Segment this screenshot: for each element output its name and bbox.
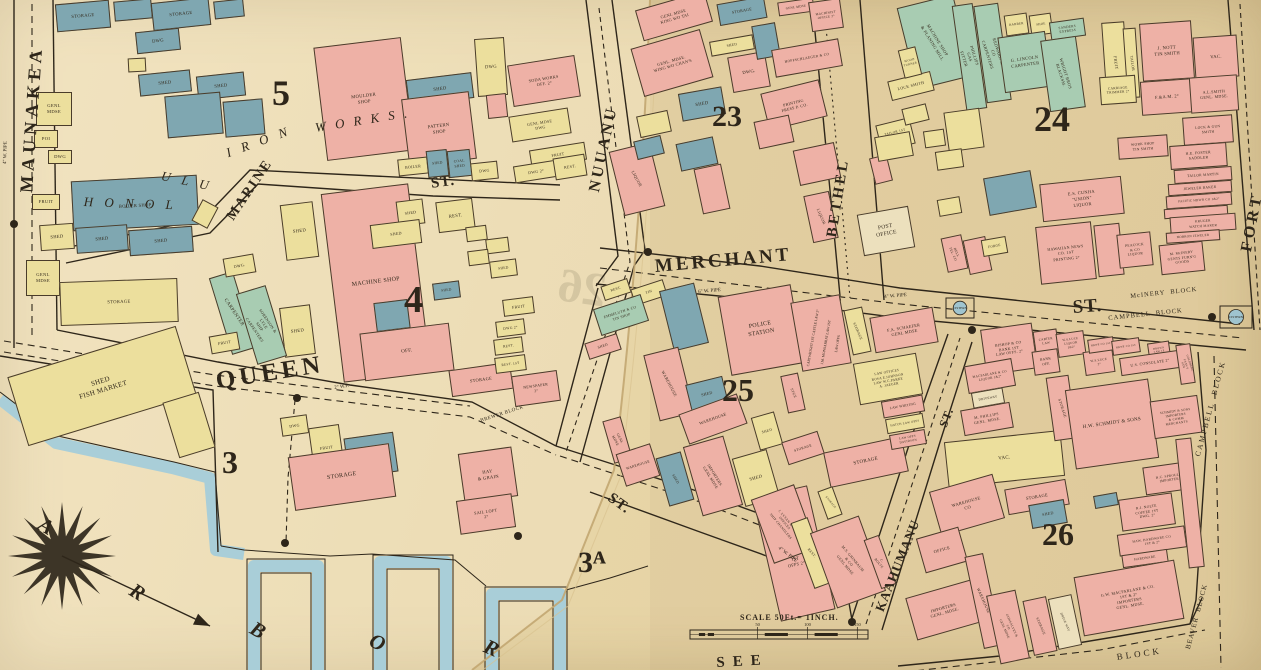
building: STORAGE [716, 0, 767, 26]
building-label: SHED [441, 288, 452, 294]
building: U.S. CONSULATE 2° [1119, 350, 1181, 376]
building: M. McINERY GENTS FURN'G GOODS [1159, 241, 1206, 275]
building-label: R.J. NOLTE COFFEE 1ST DWG. 2° [1134, 503, 1159, 520]
building-label: IMPORTERS GENL. MDSE. [928, 601, 959, 620]
building: SHED [138, 69, 192, 96]
building-label: STORAGE [1056, 398, 1067, 418]
building-label: TIN [645, 289, 653, 296]
building [1175, 438, 1205, 569]
building: SHED [426, 149, 450, 178]
building-label: STORAGE [327, 471, 357, 483]
building-label: HAW. HARDWARE CO 1ST & 2° [1132, 534, 1172, 548]
building-label: TAILOR MARTIN [1187, 172, 1219, 179]
building [164, 92, 223, 139]
building: SHED [1028, 499, 1068, 529]
building-label: WAREHOUSE [699, 412, 728, 427]
building: WORK SHOP TIN SMITH [1117, 134, 1168, 159]
building-label: STORAGE [71, 12, 95, 20]
building: SHED [489, 258, 518, 278]
building: OFFICE [916, 527, 968, 574]
building-label: JEWELER BAKER [1183, 185, 1216, 192]
building [753, 115, 794, 150]
building-label: REST. [564, 164, 577, 171]
building [113, 0, 153, 22]
building [937, 196, 963, 217]
building-label: W.S.LUCE 2° [1090, 357, 1108, 368]
building-label: STGE [789, 387, 797, 398]
building-label: GENL MDSE [47, 103, 61, 115]
building-label: C. BOLTE [872, 554, 888, 570]
building: GENL MDSE [36, 92, 72, 126]
building: SHED [584, 333, 622, 360]
building-label: STORAGE [793, 443, 812, 453]
building-label: CARRIAGE TRIMMER 2° [1106, 85, 1129, 95]
building [659, 283, 709, 352]
building-label: HOBRON JEWELER [1177, 233, 1210, 239]
building: GOLDBERG FANCY GDS [1175, 343, 1195, 385]
building: J. NOTT TIN SMITH [1139, 20, 1195, 81]
scale-label: SCALE 50Ft.= 1INCH. [740, 613, 839, 622]
building-label: GENL MDSE [785, 4, 806, 11]
building [790, 294, 851, 372]
building-label: M. McINERY GENTS FURN'G GOODS [1167, 250, 1197, 267]
building-label: FORGE [988, 243, 1001, 250]
building: A.L.SMITH GENL. MDSE. [1189, 74, 1239, 113]
building: CARRIAGE TRIMMER 2° [1099, 75, 1137, 105]
building-label: GENL. MDSE. WING WO CHAN'S [651, 52, 692, 73]
building-label: STORAGE [824, 496, 836, 510]
building: HOBRON JEWELER [1166, 229, 1221, 244]
building-label: SHED [498, 266, 509, 272]
building [213, 0, 245, 20]
building-label: SHED [1042, 510, 1054, 517]
building-label: PRINTING PRESS P. CO. [780, 97, 808, 114]
building: F.&A.M. 2° [1140, 78, 1194, 116]
building [223, 98, 266, 137]
building [901, 103, 929, 126]
building-label: REST. [448, 212, 462, 220]
building-label: G.W. MACFARLANE & CO. 1ST & 2° IMPORTERS… [1100, 583, 1157, 613]
building-label: PACIFIC HDWR CO 1&2° [1178, 197, 1220, 204]
building-label: TAILOR [1128, 55, 1135, 71]
building: H.W. SCHMIDT & SONS [1065, 379, 1159, 470]
building-label: HDWE CO 1ST [1116, 343, 1137, 349]
building [128, 58, 147, 73]
building: SAIL LOFT 2° [456, 493, 516, 534]
building-label: EMMELUTH & CO TIN SHOP [603, 305, 638, 324]
building-label: WORK SHOP TIN SMITH [1131, 142, 1155, 153]
building-label: DWG. [233, 262, 245, 269]
building-label: SAIL LOFT 2° [474, 507, 499, 521]
building-label: MACHINE SHOP & PLANING MILL [920, 22, 951, 62]
building: STORAGE [288, 443, 397, 511]
building-label: REST. [610, 286, 622, 294]
building: FORGE [981, 236, 1009, 257]
building: SHED [39, 223, 75, 251]
building-label: E.S. CUNHA "UNION" LIQUOR [1068, 189, 1097, 209]
building-label: OFFICE [933, 545, 951, 555]
building-label: HATCH LAW OFFS [890, 419, 920, 428]
building [935, 148, 964, 171]
building: FRUIT [502, 296, 535, 317]
building-label: HARDWARE [1134, 555, 1156, 562]
building-label: GENL MDSE KING WO TAI [658, 7, 689, 26]
building-label: GONSALVES & CO GENL MDSE [997, 612, 1020, 643]
building [486, 93, 508, 119]
building: BANK OFF. [1031, 348, 1060, 375]
building: R.J. NOLTE COFFEE 1ST DWG. 2° [1118, 492, 1176, 531]
building-label: STORAGE [1026, 492, 1049, 502]
buildings-layer: STORAGESTORAGEDWGSHEDSHEDGENL MDSEPOIDWG… [0, 0, 1261, 670]
building: DWG [135, 28, 181, 54]
building-label: M.S. GRINBAUM & CO GENL MDSE [832, 545, 864, 580]
building: COAL SHED [447, 149, 473, 178]
building-label: F.&A.M. 2° [1155, 93, 1179, 100]
building-label: WAREHOUSE CO [951, 495, 983, 514]
building: SHED [751, 411, 783, 450]
building-label: FRUIT [1112, 56, 1119, 70]
building-label: SHED [670, 473, 679, 485]
building-label: WAREHOUSE [625, 459, 650, 471]
building-label: LAW OFFICES ROSA E.JOHNSON LAW W.C.PARKE… [871, 367, 906, 390]
building: SHED FISH MARKET [7, 326, 196, 446]
building-label: PATTERN SHOP [427, 122, 450, 137]
building: OFF. [359, 323, 454, 382]
building-label: PHILLIPS GAS FITTER [959, 45, 981, 69]
building-label: COAL SHED [454, 158, 466, 168]
building-label: GENL MDSE [611, 433, 625, 447]
building-label: SHED [749, 473, 763, 482]
building: SHED [280, 201, 320, 261]
building: F.A. SCHAEFER GENL MDSE [869, 307, 938, 354]
building: POST OFFICE [857, 206, 916, 256]
building-label: DWG [152, 37, 164, 44]
building: FRUIT [32, 194, 60, 210]
building-label: SHED [291, 327, 305, 335]
building: STORAGE [55, 0, 111, 32]
building [467, 249, 490, 266]
building-label: HDWE CO 1ST [1091, 342, 1112, 348]
building-label: WRIGHT BROS BLACKSM. [1053, 57, 1073, 91]
building: SHED [75, 224, 129, 254]
building-label: SHED [50, 234, 64, 241]
building: SODA WORKS OFF. 2° [507, 55, 581, 107]
building: REST. [552, 154, 587, 181]
building-label: SHED [154, 238, 168, 245]
building-label: A.L.SMITH GENL. MDSE. [1200, 88, 1229, 100]
building-label: STORAGE [852, 322, 864, 341]
building: E.S. CUNHA "UNION" LIQUOR [1039, 176, 1125, 222]
building-label: H.E. FOSTER SADDLER [1186, 150, 1212, 162]
building-label: MACHINIST OFFICE 2° [815, 9, 836, 20]
building-label: STORAGE [731, 7, 752, 16]
building-label: HAWAIIAN NEWS CO. 1ST PRINTING 2° [1047, 243, 1085, 262]
building-label: G. LINCOLN CARPENTER [1010, 54, 1040, 69]
building-label: CARTER LAW [1038, 336, 1053, 346]
building: VAC. [944, 430, 1065, 488]
building-label: GENL MDSE DWG [527, 118, 554, 132]
building-label: LAW WHITING [890, 402, 917, 411]
building-label: W.S.LUCE LIQUOR 1&2° [1062, 337, 1079, 351]
building-label: OFF. [401, 348, 413, 356]
building: REST. 1ST [494, 354, 527, 374]
building-label: SHED [761, 427, 772, 434]
building-label: DWG 2° [503, 325, 518, 331]
building: HOFFSCHLAEGER & CO [771, 38, 843, 77]
building: DWG [280, 414, 309, 437]
building: DWG 2° [495, 318, 526, 337]
building-label: HAY & GRAIN [477, 468, 500, 483]
building: STORAGE [59, 278, 178, 326]
building: DWG 2° [513, 160, 559, 184]
building-label: BOILER [405, 163, 422, 170]
building-label: F.A. SCHAEFER GENL MDSE [887, 322, 922, 339]
building: STORAGE [781, 431, 825, 466]
building-label: IMPORTERS GENL MDSE [702, 463, 724, 490]
building [923, 129, 946, 149]
building-label: BANK OFF. [1040, 357, 1053, 368]
building-label: STORAGE [1034, 617, 1046, 636]
building-label: SHED FISH MARKET [76, 370, 129, 402]
building: DWG [48, 150, 72, 164]
building-label: GENL MDSE [36, 272, 50, 284]
building-label: DWG. [742, 68, 756, 76]
building-label: DRIVE WAY [1059, 612, 1071, 632]
building-label: U.S. CONSULATE 2° [1130, 358, 1170, 368]
building-label: STORAGE [470, 375, 493, 384]
building-label: KRUGER WATCH MAKER [1189, 218, 1218, 229]
building-label: DRIVEWAY [978, 394, 998, 401]
building [1093, 492, 1119, 509]
building-label: STORAGE [853, 456, 879, 468]
building: MACHINIST OFFICE 2° [808, 0, 844, 32]
building: SHED [128, 226, 194, 256]
building-label: SHED [432, 161, 443, 167]
building-label: BOILER SHOP [118, 196, 151, 210]
building-label: BISHOP & CO BANK 1ST LAW OFFS. 2° [994, 340, 1023, 358]
building: NEWSPAPER 2° [511, 370, 561, 407]
building: G.W. MACFARLANE & CO. 1ST & 2° IMPORTERS… [1074, 560, 1185, 637]
building: DWG [474, 37, 508, 97]
building: IMPORTERS GENL MDSE [683, 436, 743, 517]
building-label: FRUIT [218, 339, 232, 346]
building [983, 170, 1037, 216]
building [874, 131, 914, 162]
building-label: SHED [701, 390, 714, 398]
building-label: MACHINE SHOP [351, 276, 400, 290]
building: LIQUOR [803, 191, 838, 243]
building: DWG [470, 161, 499, 182]
building-label: SCHMIDT & SONS IMPORTERS & COMM MERCHANT… [1160, 407, 1193, 428]
building: VAC. [1193, 35, 1240, 80]
building [485, 237, 510, 255]
building-label: SORENSON & LYLE SHIP CARPENTERS [245, 307, 278, 343]
building-label: SHED [95, 236, 109, 243]
building-label: STORAGE [107, 299, 130, 306]
building: EMMELUTH & CO TIN SHOP [593, 294, 649, 336]
building: STORAGE [151, 0, 212, 31]
building-label: REST. 1ST [501, 361, 519, 368]
building-label: SHED [726, 42, 737, 48]
building: POLICE STATION [718, 284, 805, 376]
building-label: DWG [479, 168, 490, 174]
building: WRIGHT BROS BLACKSM. [1040, 36, 1086, 112]
building-label: SHED [404, 209, 416, 216]
building [636, 110, 672, 138]
building-label: LAW OFFS DAVIDSON [899, 434, 918, 445]
building-label: BARBER [1009, 21, 1024, 27]
building-label: LIQUOR [815, 208, 827, 226]
building-label: POST OFFICE [875, 222, 898, 240]
building: REST. [493, 336, 524, 355]
building: SCHMIDT & SONS IMPORTERS & COMM MERCHANT… [1150, 395, 1203, 439]
building-label: REST. [503, 343, 514, 349]
building-label: WOOD TURNER [902, 57, 917, 68]
building-label: POLICE STATION [747, 320, 776, 340]
building-label: LIQUOR [630, 170, 643, 188]
building-label: J. NOTT TIN SMITH [1154, 44, 1181, 58]
building-label: M. PHILLIPS GENL. MDSE. [973, 412, 1001, 426]
building [162, 392, 215, 459]
building: GENL MDSE DWG [508, 107, 571, 142]
building: M. PHILLIPS GENL. MDSE. [960, 402, 1014, 436]
building: HAWAIIAN NEWS CO. 1ST PRINTING 2° [1035, 221, 1097, 285]
building-label: MOULDER SHOP [351, 92, 377, 107]
building: PEACOCK & CO LIQUOR [1116, 231, 1153, 268]
building-label: DWG [485, 64, 497, 71]
building-label: SHED [214, 82, 228, 89]
building-label: SHED [158, 79, 172, 86]
building: STORAGE [817, 486, 842, 520]
building-label: BELL TEL. CO [947, 245, 961, 262]
building-label: VAC. [998, 455, 1011, 463]
building-label: DWG [289, 422, 300, 429]
building-label: FRUIT [39, 199, 54, 205]
building-label: WAREHOUSE [660, 370, 678, 398]
building: BOILER [397, 156, 429, 176]
building: SHED [432, 280, 461, 300]
building-label: LOCK & GUN SMITH [1195, 124, 1221, 135]
building: GENL MDSE [26, 260, 60, 296]
sanborn-map: CISTERNCISTERN50100150 STORAGESTORAGEDWG… [0, 0, 1261, 670]
building-label: NEWSPAPER 2° [523, 382, 549, 395]
building-label: SHED [597, 343, 609, 351]
building-label: SODA WORKS OFF. 2° [528, 73, 560, 89]
building-label: VAC. [1210, 54, 1222, 61]
building-label: DWG 2° [528, 168, 545, 176]
building-label: GOLDBERG FANCY GDS [1178, 354, 1194, 374]
building: HDWE CO 1ST [1111, 337, 1141, 356]
building-label: PEACOCK & CO LIQUOR [1125, 242, 1145, 258]
building: POI [34, 130, 58, 148]
building-label: SHED [695, 100, 709, 108]
building: SHED [678, 86, 726, 121]
building-label: STORAGE [169, 10, 193, 18]
building-label: SHED [293, 227, 307, 235]
building: BOILER SHOP [71, 175, 199, 232]
building [694, 164, 731, 215]
building-label: MACFARLANE & CO LIQUOR 1&2° [972, 369, 1008, 383]
building: WAREHOUSE CO [929, 474, 1005, 536]
building-label: FRUIT [512, 303, 526, 310]
building: LOCK & GUN SMITH [1182, 114, 1234, 145]
building-label: SANDERS EXPRESS [1058, 23, 1077, 34]
building-label: POI [42, 136, 50, 142]
building-label: HOFFSCHLAEGER & CO [784, 52, 829, 64]
building-label: H.W. SCHMIDT & SONS [1082, 417, 1141, 432]
building: MOULDER SHOP [313, 37, 414, 161]
building-label: SHOE [1036, 22, 1046, 27]
building: DWG. [223, 253, 257, 277]
building: H.E. FOSTER SADDLER [1169, 142, 1228, 170]
building [943, 108, 984, 153]
building [633, 135, 665, 160]
building-label: SHED [433, 85, 447, 93]
building-label: SHED [390, 231, 402, 238]
building: STGE [780, 373, 806, 414]
building-label: DWG [54, 154, 66, 160]
building-label: LOCK SMITH [897, 80, 925, 92]
building [793, 142, 842, 186]
